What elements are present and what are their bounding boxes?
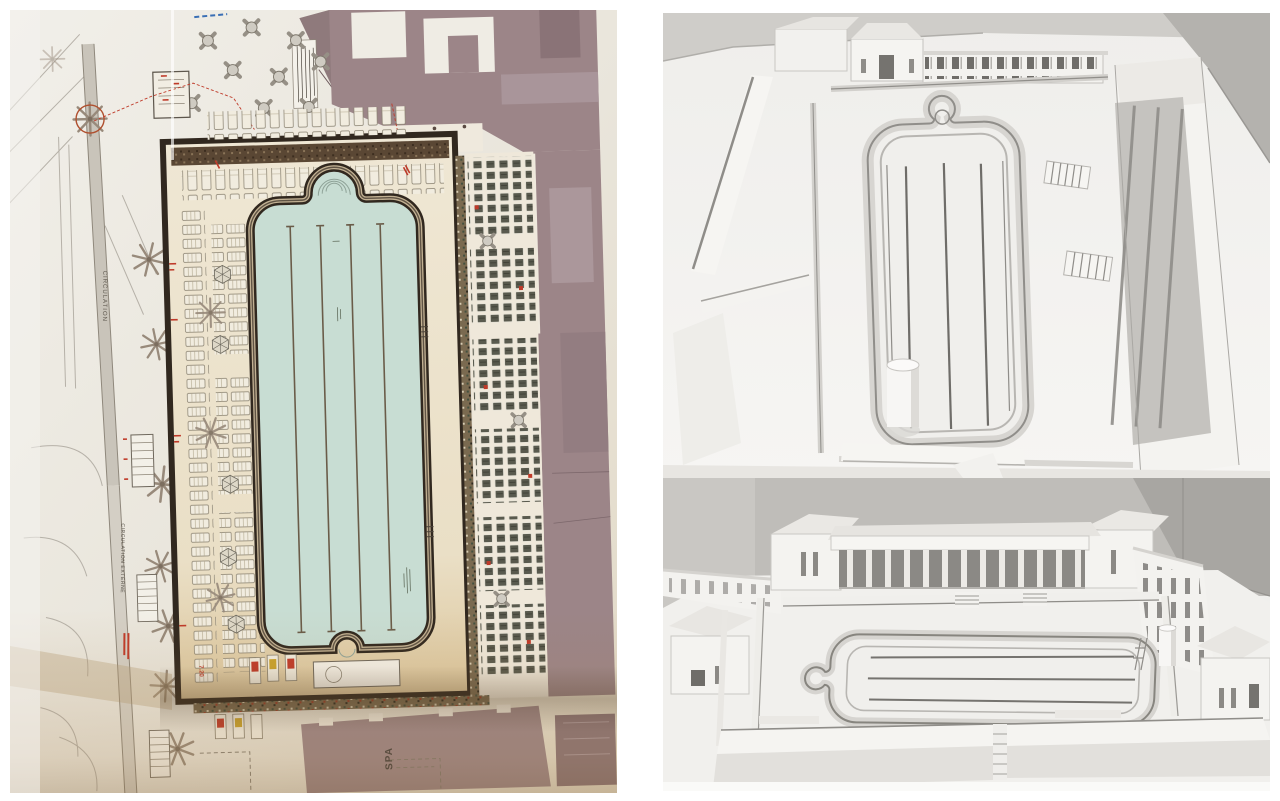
warm-light bbox=[10, 610, 617, 793]
foreground-stairs bbox=[993, 724, 1007, 780]
pavilion-center-block bbox=[851, 23, 923, 81]
circulation-label: CIRCULATION bbox=[101, 271, 107, 322]
circulation-externe-label: CIRCULATION EXTERNE bbox=[119, 523, 125, 593]
pool-outer-wall bbox=[249, 165, 432, 652]
pool bbox=[249, 165, 438, 660]
paper-fold-highlight bbox=[171, 10, 174, 160]
site-plan-photo: CIRCULATION CIRCULATION EXTERNE bbox=[10, 10, 617, 793]
cylinder-tower bbox=[886, 359, 920, 437]
model-photo-aerial bbox=[663, 13, 1270, 478]
paper-edge bbox=[10, 10, 40, 793]
model-photo-oblique bbox=[663, 478, 1270, 791]
sunbeds-north bbox=[207, 106, 408, 140]
plan-note-box bbox=[292, 40, 318, 109]
collage-page: CIRCULATION CIRCULATION EXTERNE bbox=[0, 0, 1280, 801]
